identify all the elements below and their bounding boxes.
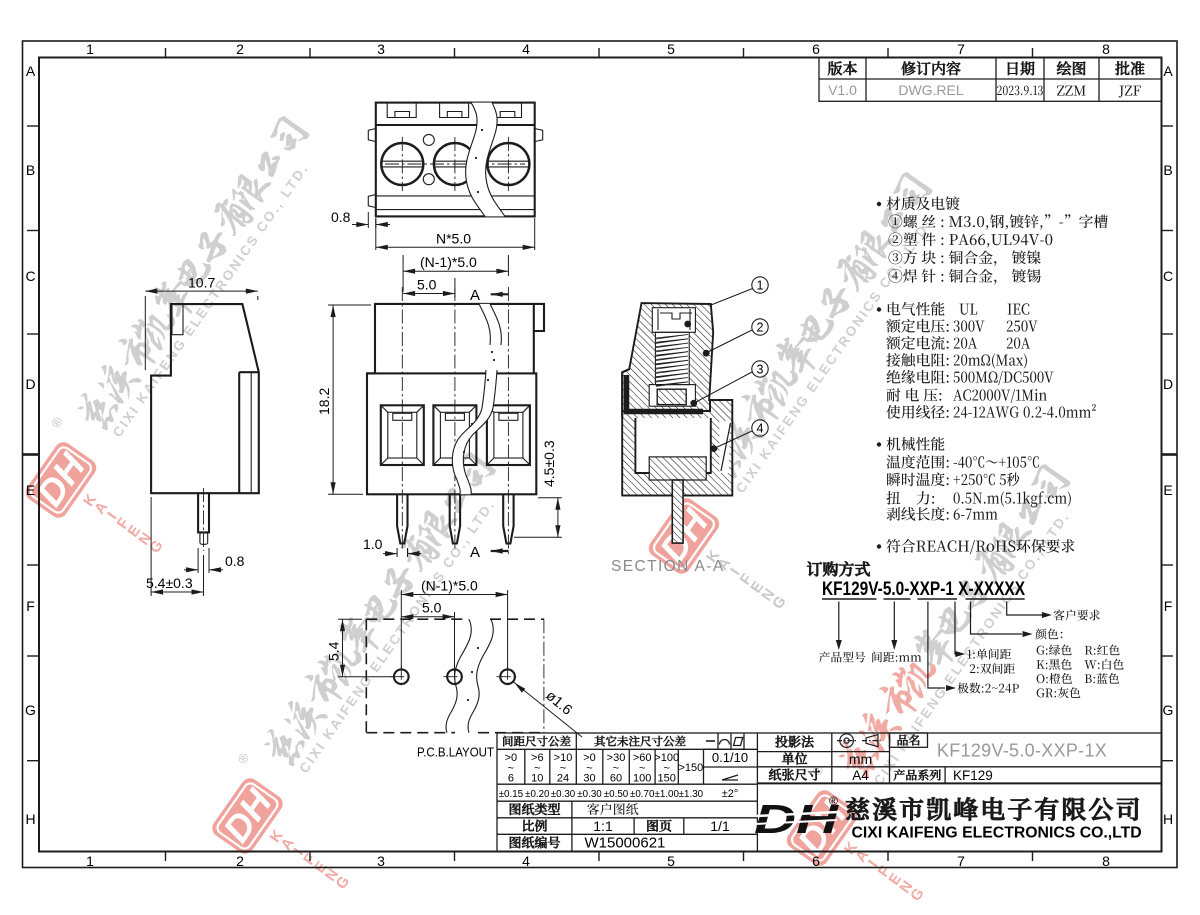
svg-text:7: 7 — [957, 41, 965, 57]
svg-text:2: 2 — [236, 41, 244, 57]
svg-text:4: 4 — [522, 41, 530, 57]
svg-text:V1.0: V1.0 — [828, 82, 857, 98]
svg-text:5: 5 — [667, 853, 675, 869]
svg-text:G: G — [1163, 702, 1174, 718]
svg-text:2: 2 — [236, 853, 244, 869]
svg-text:A: A — [470, 544, 480, 561]
svg-text:mm: mm — [849, 751, 872, 767]
svg-text:2: 2 — [757, 321, 764, 335]
svg-text:CIXI KAIFENG ELECTRONICS CO.,: CIXI KAIFENG ELECTRONICS CO., LTD. — [110, 161, 312, 440]
svg-text:3: 3 — [377, 853, 385, 869]
svg-text:W15000621: W15000621 — [585, 835, 666, 852]
svg-text:®: ® — [48, 414, 66, 431]
svg-text:1: 1 — [86, 41, 94, 57]
svg-text:0.1/10: 0.1/10 — [712, 750, 748, 765]
svg-text:±0.20: ±0.20 — [525, 789, 550, 800]
svg-text:SECTION A-A: SECTION A-A — [611, 558, 725, 575]
svg-text:4: 4 — [522, 853, 530, 869]
svg-text:5.4±0.3: 5.4±0.3 — [146, 575, 193, 591]
svg-text:®: ® — [234, 750, 252, 767]
svg-text:5.4: 5.4 — [326, 641, 342, 661]
svg-text:6: 6 — [812, 41, 820, 57]
svg-text:±0.50: ±0.50 — [604, 789, 629, 800]
svg-text:G: G — [25, 702, 36, 718]
svg-text:8: 8 — [1102, 41, 1110, 57]
svg-text:10: 10 — [531, 773, 543, 785]
svg-text:P.C.B.LAYOUT: P.C.B.LAYOUT — [417, 745, 494, 760]
svg-text:A: A — [26, 63, 36, 79]
svg-text:B: B — [26, 162, 35, 178]
svg-text:100: 100 — [633, 773, 651, 785]
svg-text:1.0: 1.0 — [363, 536, 383, 552]
svg-text:5: 5 — [667, 41, 675, 57]
svg-text:A: A — [470, 287, 480, 304]
svg-text:E: E — [26, 482, 35, 498]
svg-text:B: B — [1163, 162, 1172, 178]
svg-text:C: C — [25, 268, 35, 284]
svg-text:F: F — [1164, 598, 1173, 614]
svg-text:3: 3 — [377, 41, 385, 57]
svg-text:D: D — [1163, 376, 1173, 392]
svg-text:±2°: ±2° — [722, 788, 739, 800]
svg-text:A: A — [1163, 63, 1173, 79]
svg-text:4: 4 — [757, 422, 764, 436]
svg-text:3: 3 — [757, 363, 764, 377]
svg-text:±0.30: ±0.30 — [577, 789, 602, 800]
svg-text:(N-1)*5.0: (N-1)*5.0 — [421, 578, 478, 594]
svg-text:CIXI KAIFENG ELECTRONICS CO.,: CIXI KAIFENG ELECTRONICS CO., LTD. — [733, 217, 935, 496]
svg-text:5.0: 5.0 — [422, 600, 442, 616]
svg-text:8: 8 — [1102, 853, 1110, 869]
svg-text:10.7: 10.7 — [188, 275, 215, 291]
svg-text:18.2: 18.2 — [316, 388, 332, 415]
svg-text:ø1.6: ø1.6 — [542, 688, 575, 719]
svg-text:5.0: 5.0 — [417, 277, 437, 293]
svg-text:±1.00: ±1.00 — [654, 789, 679, 800]
svg-text:1:1: 1:1 — [593, 818, 613, 834]
svg-text:150: 150 — [658, 773, 676, 785]
svg-text:D: D — [25, 376, 35, 392]
svg-text:DWG.REL: DWG.REL — [898, 82, 964, 98]
svg-text:®: ® — [829, 794, 838, 808]
svg-text:C: C — [1163, 268, 1173, 284]
svg-text:CIXI KAIFENG ELECTRONICS CO.,: CIXI KAIFENG ELECTRONICS CO., LTD. — [296, 497, 498, 776]
svg-text:60: 60 — [610, 773, 622, 785]
svg-text:1: 1 — [86, 853, 94, 869]
svg-text:KF129V-5.0-XXP-1X: KF129V-5.0-XXP-1X — [937, 741, 1107, 761]
svg-text:KF129V-5.0-XXP-1 X-XXXXX: KF129V-5.0-XXP-1 X-XXXXX — [822, 578, 1025, 600]
svg-text:6: 6 — [508, 773, 514, 785]
svg-text:1/1: 1/1 — [710, 818, 730, 834]
svg-text:E: E — [1163, 482, 1172, 498]
svg-text:DH: DH — [754, 796, 840, 842]
svg-text:(N-1)*5.0: (N-1)*5.0 — [420, 254, 477, 270]
svg-text:0.8: 0.8 — [225, 553, 245, 569]
svg-text:±1.30: ±1.30 — [679, 789, 704, 800]
svg-text:N*5.0: N*5.0 — [436, 231, 471, 247]
svg-text:KF129: KF129 — [953, 768, 993, 783]
svg-text:6: 6 — [812, 853, 820, 869]
svg-text:±0.70: ±0.70 — [630, 789, 655, 800]
svg-text:1: 1 — [757, 279, 764, 293]
svg-text:±0.30: ±0.30 — [551, 789, 576, 800]
svg-text:24: 24 — [557, 773, 569, 785]
svg-text:4.5±0.3: 4.5±0.3 — [541, 440, 557, 487]
svg-text:7: 7 — [957, 853, 965, 869]
svg-text:>150: >150 — [679, 762, 704, 774]
svg-text:A4: A4 — [852, 768, 869, 783]
svg-text:F: F — [26, 598, 35, 614]
svg-text:0.8: 0.8 — [331, 209, 351, 225]
svg-text:H: H — [1163, 811, 1173, 827]
svg-text:30: 30 — [583, 773, 595, 785]
svg-text:H: H — [25, 811, 35, 827]
svg-text:±0.15: ±0.15 — [499, 789, 524, 800]
svg-text:CIXI KAIFENG ELECTRONICS CO.,L: CIXI KAIFENG ELECTRONICS CO.,LTD — [852, 825, 1142, 842]
